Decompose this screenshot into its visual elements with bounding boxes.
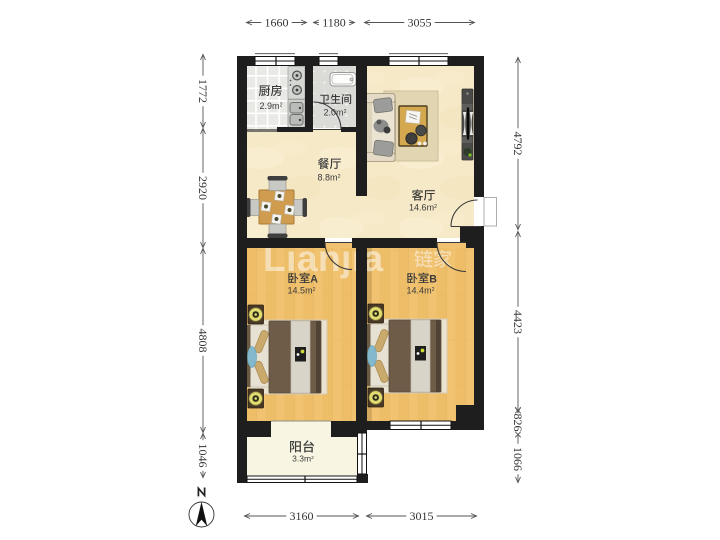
svg-text:4792: 4792	[511, 132, 525, 156]
svg-text:2920: 2920	[196, 176, 210, 200]
svg-text:14.5m2: 14.5m2	[288, 286, 316, 296]
svg-text:B: B	[429, 273, 437, 285]
svg-text:4423: 4423	[511, 310, 525, 334]
svg-text:1066: 1066	[511, 447, 525, 471]
svg-text:8.8m2: 8.8m2	[318, 173, 341, 183]
svg-text:3015: 3015	[410, 509, 434, 523]
svg-text:1180: 1180	[322, 16, 346, 30]
svg-text:2.0m2: 2.0m2	[324, 108, 347, 118]
svg-text:3055: 3055	[408, 16, 432, 30]
svg-text:1660: 1660	[265, 16, 289, 30]
svg-text:14.4m2: 14.4m2	[407, 286, 435, 296]
svg-text:3.3m2: 3.3m2	[292, 454, 314, 464]
svg-text:A: A	[310, 273, 318, 285]
svg-text:14.6m2: 14.6m2	[409, 203, 437, 213]
svg-text:826: 826	[511, 414, 525, 432]
svg-text:3160: 3160	[290, 509, 314, 523]
svg-text:1772: 1772	[196, 79, 210, 103]
svg-text:2.9m2: 2.9m2	[260, 101, 283, 111]
svg-text:1046: 1046	[196, 444, 210, 468]
svg-text:4808: 4808	[196, 329, 210, 353]
